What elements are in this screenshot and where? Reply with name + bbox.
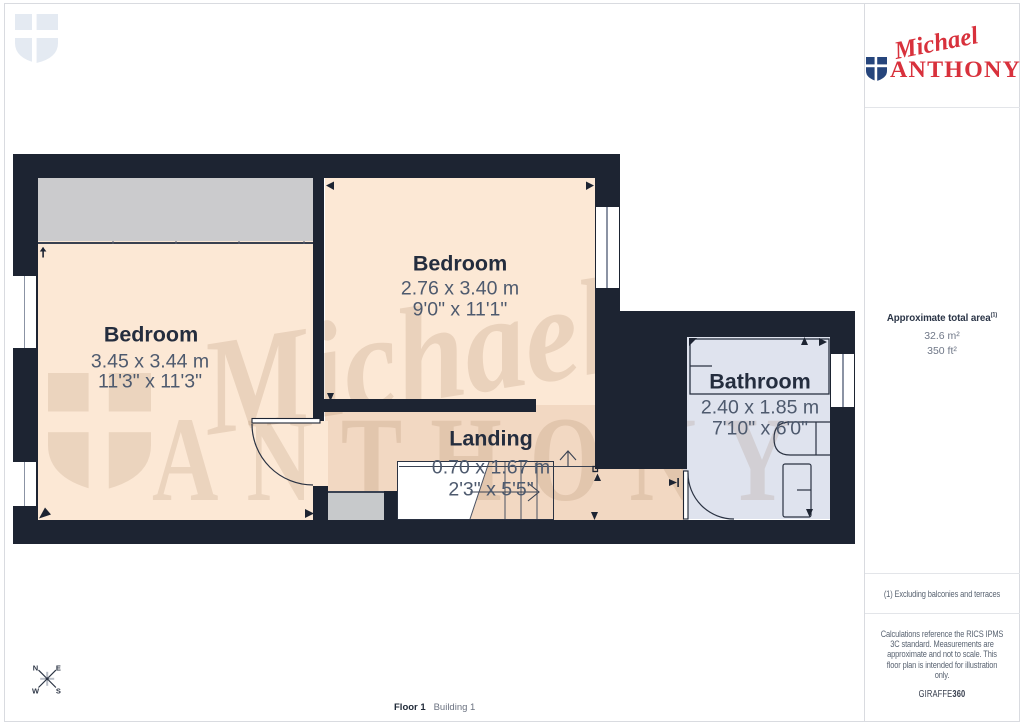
svg-text:N: N [33,664,38,673]
svg-text:W: W [32,687,40,696]
svg-text:E: E [56,664,61,673]
svg-text:S: S [56,687,61,696]
